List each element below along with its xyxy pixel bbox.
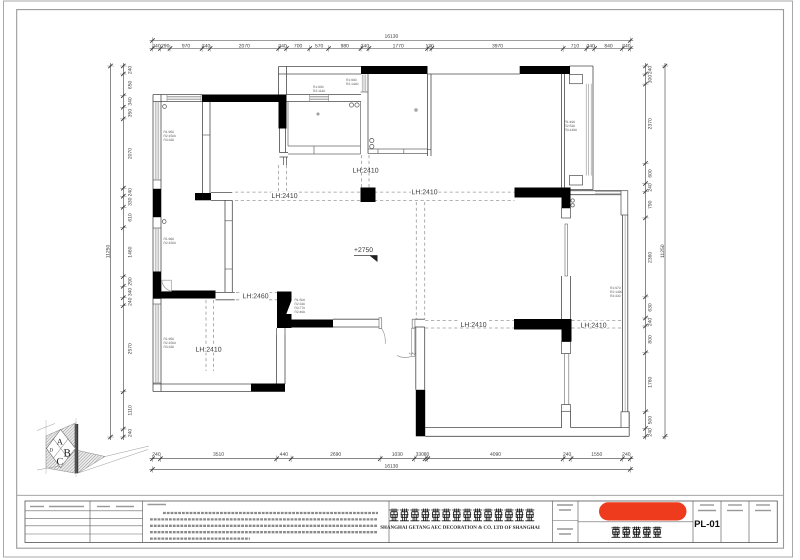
svg-text:240: 240 [647, 318, 653, 327]
svg-text:PL-01: PL-01 [694, 519, 721, 530]
svg-text:R2:460: R2:460 [294, 310, 305, 314]
svg-text:LH:2410: LH:2410 [352, 168, 378, 175]
svg-text:2070: 2070 [239, 43, 250, 49]
svg-text:2690: 2690 [330, 452, 341, 458]
svg-text:1550: 1550 [591, 452, 602, 458]
svg-text:1770: 1770 [393, 43, 404, 49]
svg-text:240: 240 [622, 43, 631, 49]
svg-text:240: 240 [152, 452, 161, 458]
svg-text:1760: 1760 [647, 376, 653, 387]
svg-text:4090: 4090 [490, 452, 501, 458]
svg-text:3970: 3970 [492, 43, 503, 49]
svg-text:2370: 2370 [647, 118, 653, 129]
svg-text:240: 240 [127, 429, 133, 438]
svg-text:240: 240 [202, 43, 211, 49]
svg-text:B: B [63, 448, 70, 460]
svg-text:800: 800 [647, 335, 653, 344]
svg-text:R2:1500: R2:1500 [163, 241, 176, 245]
svg-text:570: 570 [315, 43, 324, 49]
svg-text:R2:1140: R2:1140 [313, 89, 325, 93]
svg-text:630: 630 [647, 303, 653, 312]
svg-text:790: 790 [647, 200, 653, 209]
svg-text:LH:2410: LH:2410 [460, 322, 486, 329]
svg-text:290: 290 [161, 43, 170, 49]
svg-text:R3:1490: R3:1490 [564, 128, 577, 132]
svg-text:130: 130 [425, 43, 434, 49]
svg-text:240: 240 [127, 297, 133, 306]
svg-text:240: 240 [361, 43, 370, 49]
svg-text:2360: 2360 [647, 252, 653, 263]
svg-text:1460: 1460 [127, 246, 133, 257]
svg-text:700: 700 [294, 43, 303, 49]
svg-text:1030: 1030 [392, 452, 403, 458]
svg-text:350: 350 [127, 109, 133, 118]
svg-text:A: A [57, 437, 64, 447]
svg-text:610: 610 [127, 213, 133, 222]
svg-text:970: 970 [182, 43, 191, 49]
svg-text:1110: 1110 [127, 405, 133, 416]
svg-text:LH:2410: LH:2410 [195, 347, 221, 354]
svg-text:240: 240 [622, 452, 631, 458]
svg-text:2570: 2570 [127, 343, 133, 354]
svg-text:840: 840 [604, 43, 613, 49]
svg-text:650: 650 [127, 81, 133, 90]
svg-text:11250: 11250 [105, 245, 111, 259]
svg-text:SHANGHAI GETANG AEC DECORATION: SHANGHAI GETANG AEC DECORATION & CO. LTD… [380, 525, 540, 531]
svg-text:16130: 16130 [384, 464, 398, 470]
svg-text:330: 330 [127, 197, 133, 206]
svg-text:240: 240 [127, 188, 133, 197]
svg-text:16130: 16130 [384, 34, 398, 40]
svg-text:440: 440 [280, 452, 289, 458]
svg-text:LH:2460: LH:2460 [242, 293, 268, 300]
svg-text:240: 240 [127, 66, 133, 75]
svg-text:240: 240 [647, 428, 653, 437]
svg-text:11250: 11250 [660, 244, 666, 258]
svg-text:R3:330: R3:330 [163, 345, 174, 349]
svg-text:2070: 2070 [127, 148, 133, 159]
svg-text:D: D [49, 448, 53, 454]
svg-text:600: 600 [647, 169, 653, 178]
svg-text:+2750: +2750 [354, 247, 373, 254]
svg-text:LH:2410: LH:2410 [580, 323, 606, 330]
svg-text:240: 240 [647, 183, 653, 192]
svg-text:290: 290 [127, 277, 133, 286]
svg-text:LH:2410: LH:2410 [411, 189, 437, 196]
svg-text:500: 500 [647, 416, 653, 425]
svg-text:240: 240 [647, 66, 653, 75]
svg-text:340: 340 [127, 288, 133, 297]
svg-text:R3:330: R3:330 [163, 138, 174, 142]
svg-text:R3:330: R3:330 [610, 294, 621, 298]
svg-text:240: 240 [278, 43, 287, 49]
svg-text:300: 300 [647, 75, 653, 84]
svg-text:3510: 3510 [213, 452, 224, 458]
svg-text:LH:2410: LH:2410 [271, 193, 297, 200]
svg-text:980: 980 [341, 43, 350, 49]
svg-text:340: 340 [127, 97, 133, 106]
svg-text:710: 710 [571, 43, 580, 49]
svg-text:240: 240 [586, 43, 595, 49]
svg-text:240: 240 [563, 452, 572, 458]
svg-text:240: 240 [152, 43, 161, 49]
svg-text:C: C [56, 457, 63, 468]
svg-text:80: 80 [424, 452, 430, 458]
svg-text:R2:1440: R2:1440 [346, 82, 359, 86]
